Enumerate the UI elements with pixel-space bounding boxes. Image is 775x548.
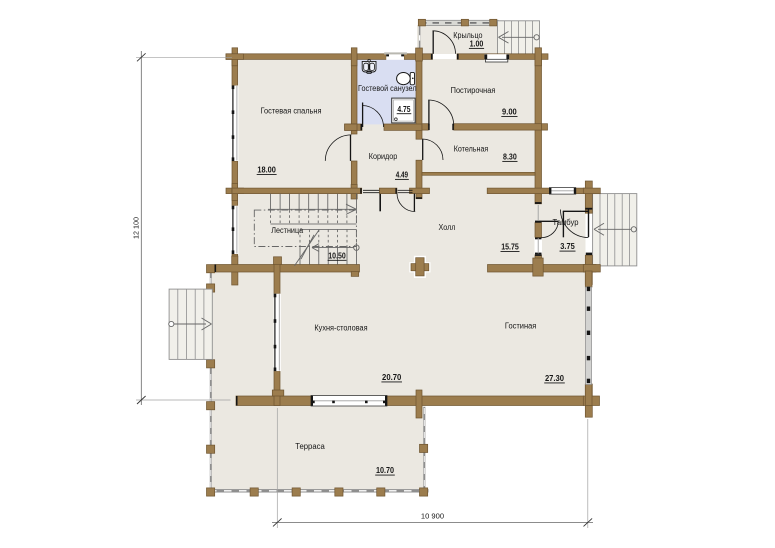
svg-text:20.70: 20.70 [382,373,402,382]
svg-text:27.30: 27.30 [545,374,565,383]
svg-text:18.00: 18.00 [257,166,276,175]
svg-text:Гостевой санузел: Гостевой санузел [358,84,417,93]
svg-text:Постирочная: Постирочная [451,86,496,95]
svg-text:Тамбур: Тамбур [553,218,580,227]
svg-text:10 900: 10 900 [421,512,444,521]
svg-text:15.75: 15.75 [501,243,519,252]
svg-text:Холл: Холл [439,223,456,232]
svg-text:10.70: 10.70 [376,466,395,475]
svg-text:10.50: 10.50 [328,251,346,260]
svg-text:Котельная: Котельная [454,144,489,153]
svg-text:Гостиная: Гостиная [505,322,536,331]
svg-text:Терраса: Терраса [295,442,325,451]
svg-text:12 100: 12 100 [131,217,140,239]
svg-text:Гостевая спальня: Гостевая спальня [261,106,322,115]
svg-text:1.00: 1.00 [470,40,484,49]
svg-text:4.49: 4.49 [396,171,409,180]
svg-text:Кухня-столовая: Кухня-столовая [314,324,367,333]
svg-text:3.75: 3.75 [560,242,575,251]
svg-text:8.30: 8.30 [503,153,517,162]
svg-text:4.75: 4.75 [397,105,411,114]
svg-text:Лестница: Лестница [271,226,303,235]
svg-text:Коридор: Коридор [369,152,398,161]
svg-text:9.00: 9.00 [502,108,517,117]
